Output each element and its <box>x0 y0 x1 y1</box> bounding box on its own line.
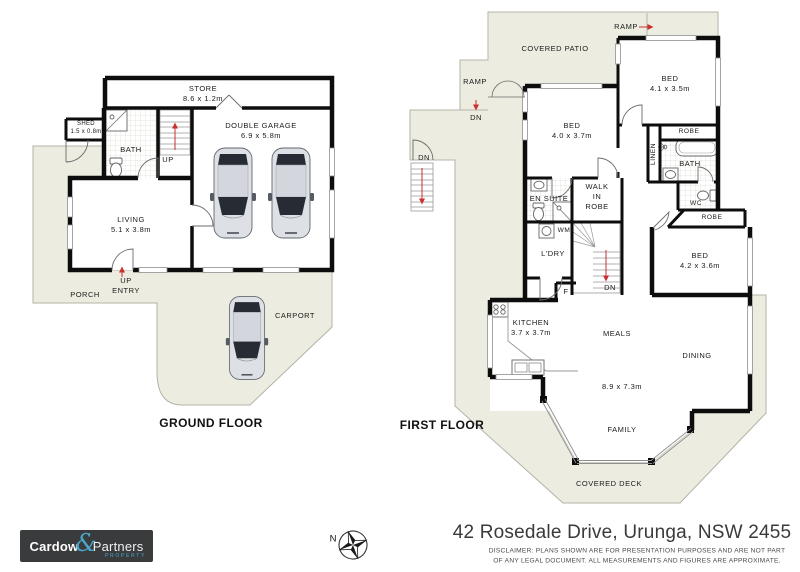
label-dn-stairs: DN <box>418 153 430 163</box>
agency-logo: Cardow & Partners PROPERTY <box>20 530 153 562</box>
label-fridge: F <box>563 287 568 297</box>
ensuite-shower <box>553 202 572 222</box>
room-label-store: STORE8.6 x 1.2m <box>183 84 223 104</box>
ground-stairs <box>160 110 190 155</box>
room-label-covered-deck: COVERED DECK <box>576 479 642 489</box>
garage-car-2 <box>268 148 314 238</box>
floor-plan-page: STORE8.6 x 1.2m SHED1.5 x 0.8m BATH UP D… <box>0 0 800 572</box>
carport-car <box>226 297 268 380</box>
room-label-meals: MEALS <box>603 329 631 339</box>
room-label-porch: PORCH <box>70 290 100 300</box>
room-label-bed-front: BED4.0 x 3.7m <box>552 121 592 141</box>
room-label-family: FAMILY <box>607 425 636 435</box>
label-living-area-dims: 8.9 x 7.3m <box>602 382 642 392</box>
label-dn-ramp: DN <box>470 113 482 123</box>
bath-sink <box>663 168 678 181</box>
logo-tagline: PROPERTY <box>105 553 146 559</box>
washing-machine <box>539 224 554 238</box>
room-label-kitchen: KITCHEN3.7 x 3.7m <box>511 318 551 338</box>
logo-word-cardow: Cardow <box>30 539 79 554</box>
property-address: 42 Rosedale Drive, Urunga, NSW 2455 <box>453 522 792 544</box>
label-entry: UPENTRY <box>112 276 140 296</box>
shower-ground <box>106 110 127 131</box>
room-label-shed: SHED1.5 x 0.8m <box>70 120 101 136</box>
room-label-dining: DINING <box>682 351 711 361</box>
first-floor-title: FIRST FLOOR <box>400 420 484 430</box>
room-label-living: LIVING5.1 x 3.8m <box>111 215 151 235</box>
room-label-bath-first: BATH <box>679 159 700 169</box>
logo-word-partners: Partners <box>93 539 144 554</box>
label-wm: WM <box>558 226 571 236</box>
logo-ampersand: & <box>75 529 96 557</box>
compass-icon <box>335 527 371 563</box>
ground-floor-title: GROUND FLOOR <box>159 418 262 428</box>
ensuite-toilet <box>533 203 544 221</box>
label-stairs-up: UP <box>162 155 173 165</box>
room-label-bed-top: BED4.1 x 3.5m <box>650 74 690 94</box>
disclaimer-line-1: DISCLAIMER: PLANS SHOWN ARE FOR PRESENTA… <box>489 548 785 555</box>
room-label-robe-rear: ROBE <box>702 213 723 223</box>
room-label-walk-in-robe: WALKINROBE <box>585 182 608 212</box>
toilet-ground <box>110 158 122 177</box>
room-label-garage: DOUBLE GARAGE6.9 x 5.8m <box>225 121 297 141</box>
stove <box>491 302 508 317</box>
room-label-laundry: L'DRY <box>541 249 565 259</box>
room-label-covered-patio: COVERED PATIO <box>521 44 588 54</box>
external-stairs <box>411 163 433 211</box>
label-ramp-top: RAMP <box>614 22 638 32</box>
room-label-robe-top: ROBE <box>679 127 700 137</box>
kitchen-sink <box>512 360 544 375</box>
label-dn-center: DN <box>604 283 616 293</box>
room-label-linen: LINEN <box>649 143 659 165</box>
disclaimer-line-2: OF ANY LEGAL DOCUMENT. ALL MEASUREMENTS … <box>493 558 780 565</box>
bathtub <box>676 139 718 156</box>
ensuite-sink <box>531 179 547 191</box>
room-label-ensuite: EN SUITE <box>530 194 569 204</box>
room-label-bath-ground: BATH <box>120 145 141 155</box>
compass-north-label: N <box>330 534 337 545</box>
room-label-bed-rear: BED4.2 x 3.6m <box>680 251 720 271</box>
garage-car-1 <box>210 148 256 238</box>
label-ramp-left: RAMP <box>463 77 487 87</box>
room-label-wc: WC <box>690 199 702 209</box>
room-label-carport: CARPORT <box>275 311 315 321</box>
